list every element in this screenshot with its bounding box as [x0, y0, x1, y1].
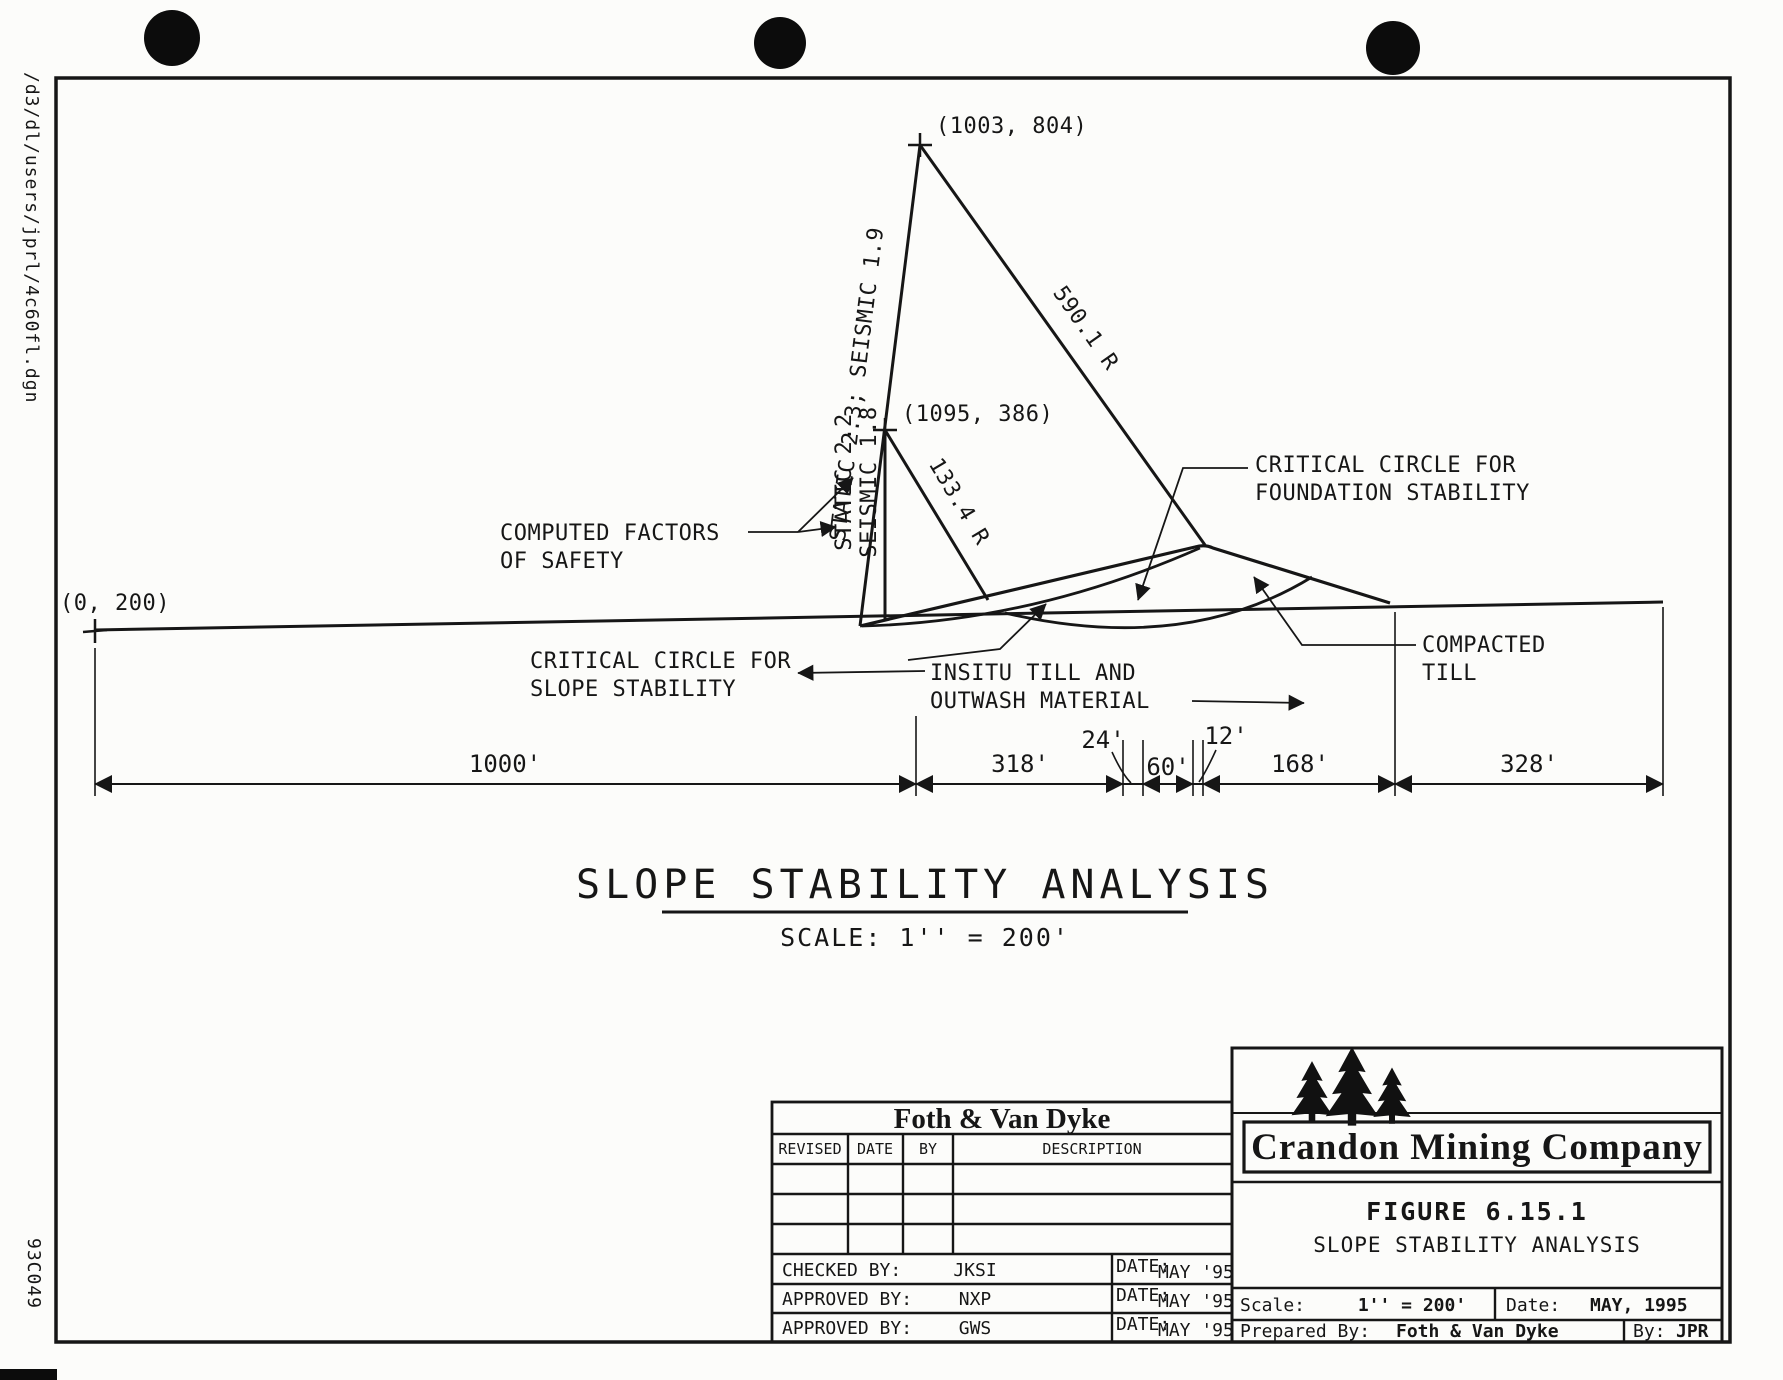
- approved-by-label: APPROVED BY:: [782, 1289, 912, 1310]
- second-coordinate-label: (1095, 386): [902, 402, 1053, 427]
- factors-static-2-label: STATIC 2.2: [832, 413, 857, 550]
- dim-label-12: 12': [1204, 722, 1247, 750]
- radius-590-label: 590.1 R: [1047, 282, 1123, 375]
- origin-coordinate-label: (0, 200): [60, 591, 170, 616]
- prepared-by-label: Prepared By:: [1240, 1321, 1370, 1342]
- approved-date-value-2: MAY '95: [1158, 1320, 1234, 1341]
- compacted-till-label-1: COMPACTED: [1422, 633, 1546, 658]
- dim-label-328: 328': [1500, 750, 1558, 778]
- dim-label-60: 60': [1146, 753, 1189, 781]
- insitu-label-2: OUTWASH MATERIAL: [930, 689, 1150, 714]
- apex-coordinate-label: (1003, 804): [936, 114, 1087, 139]
- slope-circle-label-1: CRITICAL CIRCLE FOR: [530, 649, 791, 674]
- figure-title: SLOPE STABILITY ANALYSIS: [1313, 1233, 1640, 1257]
- approved-date-value: MAY '95: [1158, 1291, 1234, 1312]
- approved-by-initials: NXP: [959, 1289, 992, 1310]
- date-value: MAY, 1995: [1590, 1295, 1688, 1316]
- foundation-circle-label-1: CRITICAL CIRCLE FOR: [1255, 453, 1516, 478]
- col-header-description: DESCRIPTION: [1042, 1140, 1141, 1158]
- signoff-row: APPROVED BY: NXP DATE: MAY '95: [782, 1285, 1234, 1312]
- foundation-circle-callout: CRITICAL CIRCLE FOR FOUNDATION STABILITY: [1138, 453, 1530, 600]
- dim-label-168: 168': [1271, 750, 1329, 778]
- compacted-till-label-2: TILL: [1422, 661, 1477, 686]
- checked-by-label: CHECKED BY:: [782, 1260, 901, 1281]
- punch-hole-icon: [754, 17, 806, 69]
- dim-leader-24: [1112, 752, 1131, 783]
- computed-factors-callout: COMPUTED FACTORS OF SAFETY: [500, 478, 853, 574]
- insitu-label-1: INSITU TILL AND: [930, 661, 1136, 686]
- margin-doc-code: 93C049: [23, 1238, 44, 1309]
- punch-hole-icon: [1366, 21, 1420, 75]
- by-value: JPR: [1676, 1321, 1709, 1342]
- drawing-title-group: SLOPE STABILITY ANALYSIS SCALE: 1'' = 20…: [576, 862, 1274, 952]
- col-header-date: DATE: [857, 1140, 893, 1158]
- compacted-till-callout: COMPACTED TILL: [1254, 577, 1546, 686]
- col-header-revised: REVISED: [778, 1140, 841, 1158]
- company-name: Crandon Mining Company: [1251, 1127, 1703, 1168]
- computed-factors-label-2: OF SAFETY: [500, 549, 624, 574]
- title-block: Crandon Mining Company FIGURE 6.15.1 SLO…: [1232, 1047, 1722, 1342]
- signoff-row: CHECKED BY: JKSI DATE: MAY '95: [782, 1256, 1234, 1283]
- dim-label-318: 318': [991, 750, 1049, 778]
- scale-label: Scale:: [1240, 1295, 1305, 1316]
- computed-factors-label-1: COMPUTED FACTORS: [500, 521, 720, 546]
- dim-label-1000: 1000': [469, 750, 541, 778]
- pine-tree-icon: [1326, 1047, 1379, 1126]
- figure-number: FIGURE 6.15.1: [1366, 1197, 1588, 1226]
- pine-tree-icon: [1292, 1061, 1333, 1123]
- prepared-by-value: Foth & Van Dyke: [1396, 1321, 1559, 1342]
- drawing-title: SLOPE STABILITY ANALYSIS: [576, 862, 1274, 908]
- margin-file-path: /d3/dl/users/jprl/4c60fl.dgn: [21, 72, 42, 403]
- factors-seismic-2-label: SEISMIC 1.8: [857, 406, 882, 557]
- foundation-circle-label-2: FOUNDATION STABILITY: [1255, 481, 1530, 506]
- pine-tree-icon: [1373, 1068, 1411, 1124]
- date-label: Date:: [1506, 1295, 1560, 1316]
- scan-artifact: [0, 1369, 57, 1380]
- origin-point-marker: [83, 619, 107, 643]
- col-header-by: BY: [919, 1140, 937, 1158]
- approved-by-initials-2: GWS: [959, 1318, 992, 1339]
- dim-label-24: 24': [1081, 726, 1124, 754]
- foundation-critical-circle-arc: [1005, 577, 1312, 628]
- radius-133-label: 133.4 R: [923, 454, 994, 550]
- revision-block: Foth & Van Dyke REVISED DATE BY DESCRIPT…: [772, 1102, 1234, 1342]
- sheet-frame: [0, 10, 1730, 1380]
- pine-trees-logo-icon: [1292, 1047, 1411, 1126]
- insitu-till-callout: INSITU TILL AND OUTWASH MATERIAL: [798, 661, 1304, 714]
- checked-by-initials: JKSI: [953, 1260, 996, 1281]
- punch-hole-icon: [144, 10, 200, 66]
- approved-by-label-2: APPROVED BY:: [782, 1318, 912, 1339]
- leader-arrow: [1192, 701, 1304, 703]
- leader-arrow: [798, 671, 925, 673]
- slope-circle-label-2: SLOPE STABILITY: [530, 677, 736, 702]
- leader-arrow: [1138, 468, 1248, 600]
- dim-leader-12: [1199, 750, 1216, 782]
- drawing-scale-note: SCALE: 1'' = 200': [780, 923, 1070, 952]
- drawing-sheet: /d3/dl/users/jprl/4c60fl.dgn 93C049: [0, 0, 1783, 1380]
- slope-diagram: [83, 133, 1663, 643]
- revision-company-name: Foth & Van Dyke: [894, 1103, 1111, 1135]
- by-label: By:: [1633, 1321, 1666, 1342]
- scale-value: 1'' = 200': [1358, 1295, 1466, 1316]
- signoff-row: APPROVED BY: GWS DATE: MAY '95: [782, 1314, 1234, 1341]
- checked-date-value: MAY '95: [1158, 1262, 1234, 1283]
